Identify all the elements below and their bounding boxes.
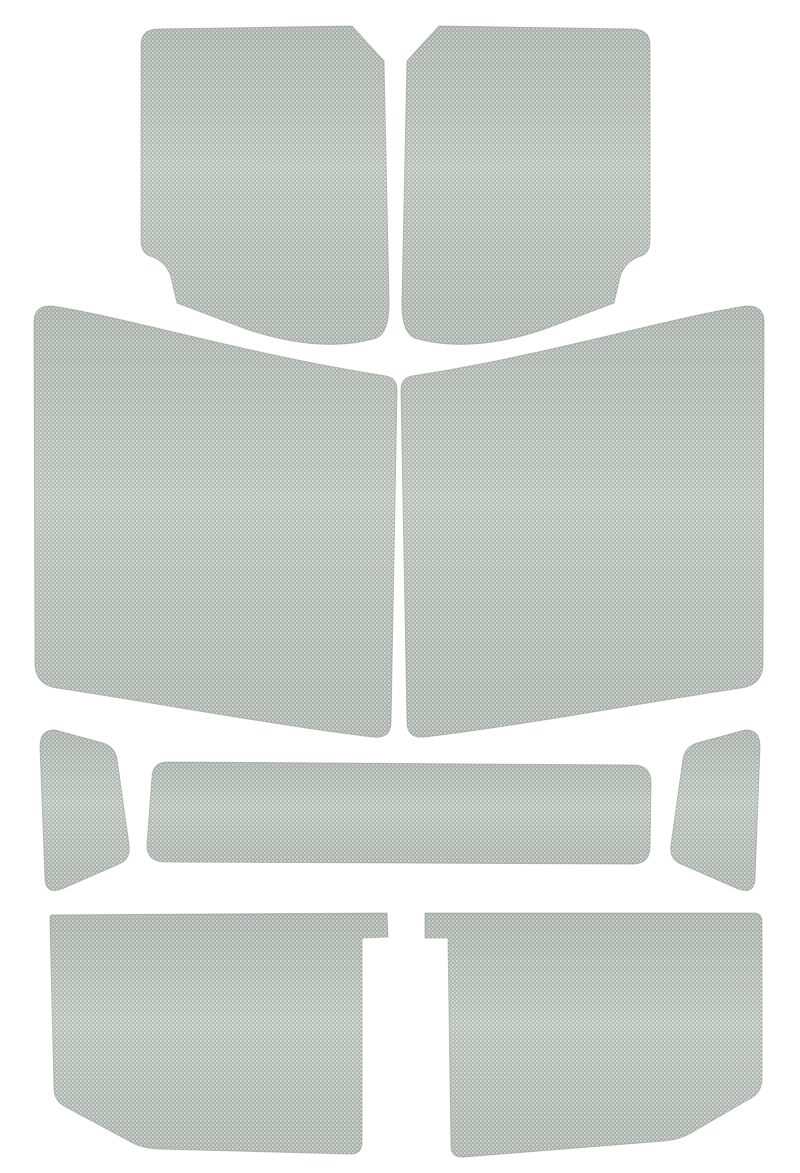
sail-panel-right <box>671 730 760 891</box>
fabric-pieces <box>34 26 764 1157</box>
rear-side-panel-left <box>34 306 397 737</box>
tailgate-panel-left <box>50 913 388 1154</box>
fabric-kit-image <box>0 0 800 1173</box>
rear-side-panel-right <box>401 306 764 737</box>
front-panel-left <box>141 26 389 344</box>
tailgate-panel-right <box>425 913 762 1157</box>
product-photo <box>0 0 800 1173</box>
front-panel-right <box>402 26 650 344</box>
sail-panel-left <box>40 730 129 891</box>
center-bar-panel <box>147 762 651 864</box>
